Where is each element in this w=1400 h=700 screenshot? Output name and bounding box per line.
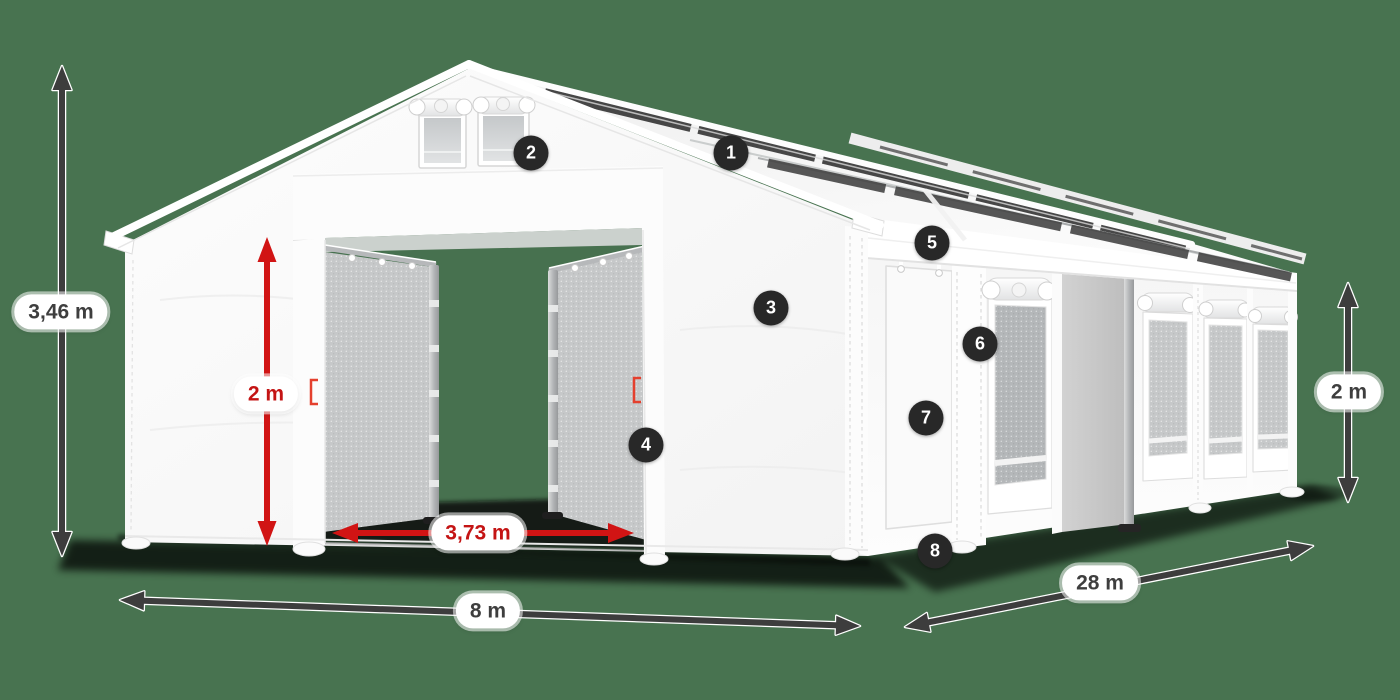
callout-badge-7[interactable]: 7 — [909, 401, 944, 436]
callout-badge-6[interactable]: 6 — [963, 327, 998, 362]
front-door-right — [542, 246, 646, 540]
side-window-2 — [1138, 293, 1198, 481]
tent-illustration — [0, 0, 1400, 700]
side-window-3 — [1199, 300, 1252, 479]
dimension-label-tent-width: 8 m — [456, 593, 520, 628]
callout-badge-1[interactable]: 1 — [714, 136, 749, 171]
open-section — [1062, 271, 1141, 532]
door-jamb-left — [293, 238, 325, 556]
callout-badge-8[interactable]: 8 — [918, 534, 953, 569]
dimension-label-door-height: 2 m — [234, 376, 298, 411]
side-door — [886, 251, 952, 529]
dimension-label-door-width: 3,73 m — [431, 515, 524, 550]
wall-post — [1052, 270, 1062, 534]
dimension-label-total-height: 3,46 m — [14, 294, 107, 329]
corner-post — [1288, 282, 1297, 492]
tent-diagram-stage: 3,46 m2 m3,73 m8 m28 m2 m12345678 — [0, 0, 1400, 700]
skirt-foot — [1280, 487, 1304, 497]
callout-badge-2[interactable]: 2 — [514, 136, 549, 171]
wall-post — [1193, 282, 1203, 505]
skirt-foot — [122, 537, 150, 549]
callout-badge-5[interactable]: 5 — [915, 226, 950, 261]
skirt-foot — [1189, 503, 1211, 513]
wall-post — [952, 264, 986, 549]
side-window-1 — [982, 278, 1056, 514]
corner-post — [845, 226, 868, 556]
dimension-label-tent-length: 28 m — [1062, 565, 1138, 600]
skirt-foot — [831, 548, 859, 560]
front-opening — [322, 228, 646, 550]
dimension-label-side-height: 2 m — [1317, 374, 1381, 409]
callout-badge-3[interactable]: 3 — [754, 291, 789, 326]
callout-badge-4[interactable]: 4 — [629, 428, 664, 463]
front-door-left — [323, 245, 444, 532]
